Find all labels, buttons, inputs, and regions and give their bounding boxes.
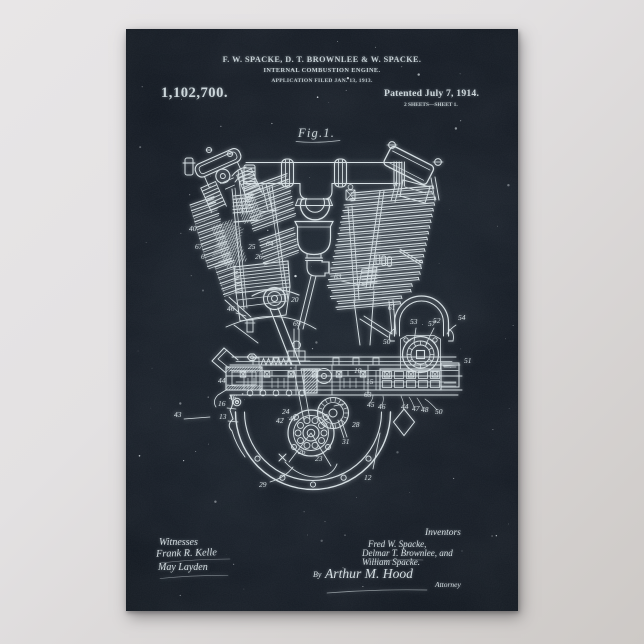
svg-text:41: 41 [289,414,297,423]
svg-text:44: 44 [401,402,409,411]
svg-text:53: 53 [410,317,418,326]
svg-text:20: 20 [291,295,299,304]
svg-text:40: 40 [189,224,197,233]
svg-text:42: 42 [276,416,284,425]
svg-text:69: 69 [293,319,301,328]
svg-text:45: 45 [367,400,375,409]
svg-text:31: 31 [341,437,350,446]
svg-text:63: 63 [364,390,372,399]
svg-text:26: 26 [255,252,263,261]
svg-text:28: 28 [352,420,360,429]
svg-text:48: 48 [421,405,429,414]
svg-text:6: 6 [201,252,205,261]
svg-text:44: 44 [218,376,226,385]
svg-text:63: 63 [334,272,342,281]
svg-text:46: 46 [378,402,386,411]
svg-text:13: 13 [219,412,227,421]
svg-text:46: 46 [229,393,237,402]
svg-text:29: 29 [259,480,267,489]
svg-text:47: 47 [412,404,420,413]
svg-text:67: 67 [195,242,203,251]
svg-text:50: 50 [435,407,443,416]
svg-text:46: 46 [227,304,235,313]
svg-text:57: 57 [428,319,436,328]
svg-text:61: 61 [388,303,396,312]
svg-text:50: 50 [383,337,391,346]
svg-text:10: 10 [354,366,362,375]
svg-text:43: 43 [174,410,182,419]
svg-text:15: 15 [366,377,374,386]
svg-text:23: 23 [315,454,323,463]
svg-text:64: 64 [266,239,274,248]
svg-text:25: 25 [248,242,256,251]
svg-text:12: 12 [364,473,372,482]
svg-text:26: 26 [298,447,306,456]
svg-text:51: 51 [464,356,472,365]
svg-text:54: 54 [458,313,466,322]
svg-text:16: 16 [218,399,226,408]
